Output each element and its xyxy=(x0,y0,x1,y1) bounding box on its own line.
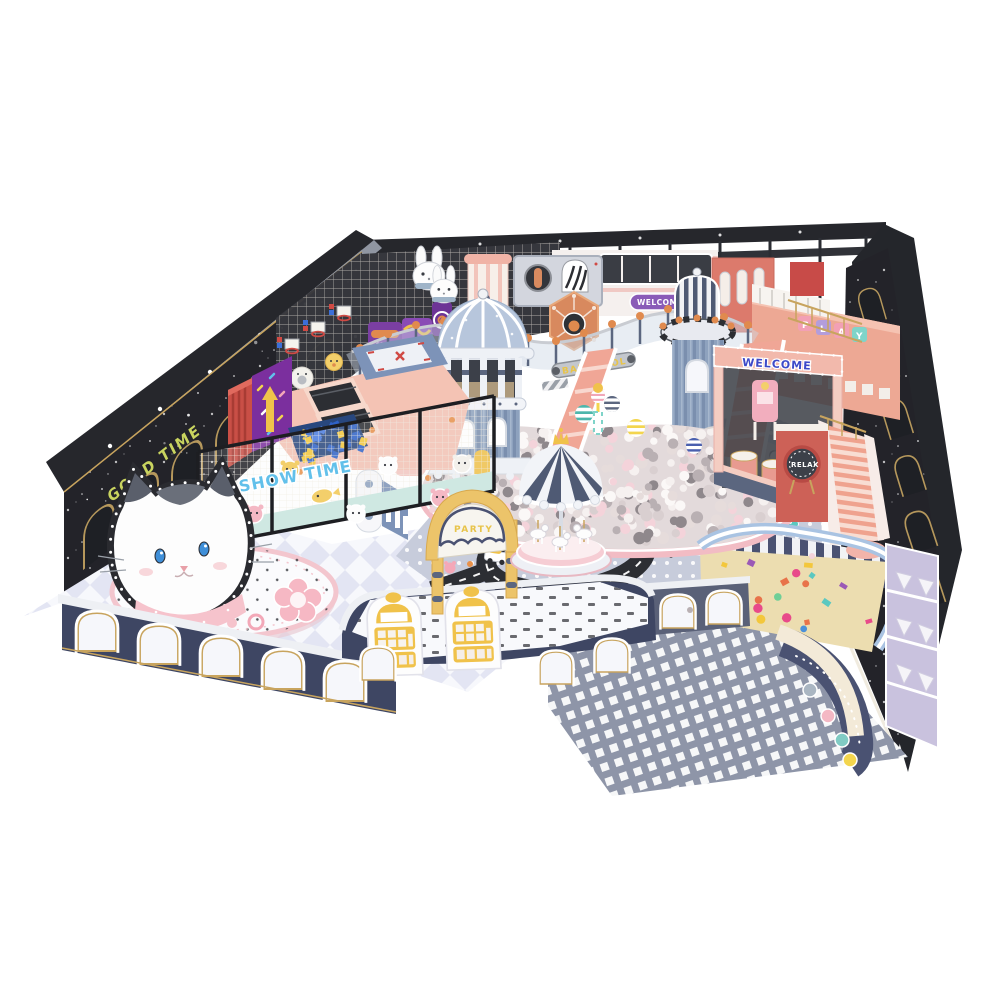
relax-text: RELAX xyxy=(791,461,819,469)
chick-cutout xyxy=(326,354,343,371)
sheep-cutout xyxy=(291,367,313,389)
playground-render: GOOD TIME GEOMETRY xyxy=(0,0,1000,1000)
toddler-house xyxy=(444,585,501,670)
toddler-area xyxy=(342,578,656,686)
party-gate-text: PARTY xyxy=(454,525,493,535)
relax-kiosk: RELAX xyxy=(776,424,828,522)
toy-shelf xyxy=(886,544,938,748)
scene-svg: GOOD TIME GEOMETRY xyxy=(0,0,1000,1000)
porthole-panel xyxy=(514,256,602,306)
